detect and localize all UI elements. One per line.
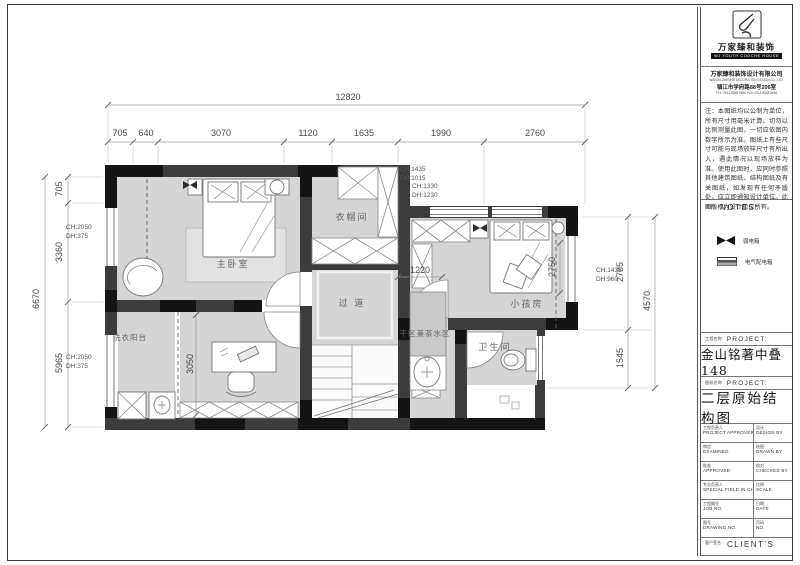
client-signature-row: 客户签名 CLIENT'S	[701, 538, 792, 556]
notes-label-zh: 说明	[705, 204, 714, 210]
notes-text: 注：本图纸均以公制为单位，所有尺寸用毫米计算。切勿以比例测量此图，一切应依图内数…	[705, 107, 788, 213]
room-label-laundry-balcony: 洗衣阳台	[102, 332, 158, 343]
company-logo: 万家臻和装饰 WJ YOUTH CODCHE HOUSE	[701, 7, 792, 67]
legend-label: 电气配电箱	[745, 258, 773, 266]
client-label-zh: 客户签名	[705, 540, 721, 545]
cell-label-en: CHECKED BY	[756, 468, 795, 474]
title-block-table: 工程负责人PROJECT APPROVER 设计DESIGN BY 审定EXAM…	[701, 424, 792, 538]
project-label-zh: 工程名称	[705, 336, 722, 342]
dim-top-seg-5: 1635	[344, 128, 384, 138]
dim-top-seg-2: 640	[128, 128, 164, 138]
floor-plan-canvas	[0, 0, 695, 565]
room-label-master-bedroom: 主卧室	[209, 257, 257, 270]
dim-top-seg-3: 3070	[201, 128, 241, 138]
company-info: 万家臻和装饰设计有限公司 WANJIA ZHENHE DECORATION DE…	[701, 67, 792, 103]
dim-top-seg-7: 2760	[515, 128, 555, 138]
cell-label-en: NO.	[756, 525, 795, 531]
notes-label-row: 说明 NOTES:	[701, 200, 792, 214]
drawing-label-zh: 图纸名称	[705, 380, 722, 386]
weak-current-box-icon	[717, 236, 735, 245]
company-address: 镇江市学府路88号206室	[701, 83, 792, 91]
dim-left-seg-2: 3360	[54, 232, 64, 272]
storage-room-marks	[500, 396, 519, 409]
project-name: 金山铭著中叠148	[701, 346, 792, 377]
title-block-panel: 万家臻和装饰 WJ YOUTH CODCHE HOUSE 万家臻和装饰设计有限公…	[700, 7, 792, 556]
staircase	[312, 345, 398, 418]
notes-label-en: NOTES:	[720, 203, 759, 212]
table-row: 工程编号JOB NO. 日期DATE	[701, 500, 792, 519]
dim-left-seg-3: 5965	[54, 343, 64, 383]
table-row: 批准APPROVED 校对CHECKED BY	[701, 462, 792, 481]
window-annotation-2: CH:2050DH:375	[66, 354, 92, 372]
window-annotation-3: CH:1435DH:1015	[400, 166, 426, 184]
drawing-sheet: 12820 705 640 3070 1120 1635 1990 2760 6…	[0, 0, 800, 565]
dim-top-seg-6: 1990	[421, 128, 461, 138]
dim-right-overall: 4570	[642, 281, 652, 321]
dry-area-counter	[410, 292, 446, 390]
cell-label-en: SPECIAL FIELD IN CHARGE	[703, 487, 751, 493]
dim-dry-width: 1220	[400, 265, 440, 275]
cell-label-en: PROJECT APPROVER	[703, 430, 751, 436]
company-logo-icon	[732, 10, 762, 40]
room-label-corridor: 过 道	[328, 296, 376, 309]
cell-label-en: JOB NO.	[703, 506, 751, 512]
dim-left-seg-1: 705	[54, 169, 64, 209]
dim-kid-depth: 2750	[547, 247, 557, 287]
cell-label-en: EXAMINED	[703, 449, 751, 455]
table-row: 图号DRAWING NO. 页码NO.	[701, 519, 792, 538]
dim-left-overall: 6670	[31, 279, 41, 319]
distribution-box-icon	[717, 257, 737, 266]
master-armchair	[123, 258, 163, 296]
notes-section: 注：本图纸均以公制为单位，所有尺寸用毫米计算。切勿以比例测量此图，一切应依图内数…	[701, 103, 792, 200]
cell-label-en: DATE	[756, 506, 795, 512]
cell-label-en: DRAWN BY	[756, 449, 795, 455]
table-row: 工程负责人PROJECT APPROVER 设计DESIGN BY	[701, 424, 792, 443]
cell-label-en: APPROVED	[703, 468, 751, 474]
drawing-label-en: PROJECT:	[727, 380, 768, 387]
room-label-dry-tea-area: 干区兼茶水区	[393, 328, 457, 339]
company-name: 万家臻和装饰设计有限公司	[701, 69, 792, 78]
company-phone: TEL: 0511-8888 6666 FAX: 0511-8888 6666	[706, 91, 788, 95]
table-row: 专业负责人SPECIAL FIELD IN CHARGE 比例SCALE	[701, 481, 792, 500]
cell-label-en: DRAWING NO.	[703, 525, 751, 531]
dim-study-depth: 3050	[185, 344, 195, 384]
drawing-name: 二层原始结构图	[701, 390, 792, 424]
room-label-kids-room: 小孩房	[503, 297, 551, 310]
room-label-bathroom: 卫生间	[471, 340, 519, 353]
room-label-cloakroom: 衣帽间	[328, 210, 376, 223]
client-label-en: CLIENT'S	[727, 540, 774, 549]
legend-label: 弱电箱	[743, 237, 760, 245]
cell-label-en: DESIGN BY	[756, 430, 795, 436]
dim-overall-width: 12820	[328, 92, 368, 102]
dim-top-seg-4: 1120	[288, 128, 328, 138]
project-label-en: PROJECT:	[727, 336, 768, 343]
legend-item-weak-current: 弱电箱	[717, 236, 792, 245]
cell-label-en: SCALE	[756, 487, 795, 493]
logo-tagline: WJ YOUTH CODCHE HOUSE	[711, 53, 782, 59]
company-name-en: WANJIA ZHENHE DECORATION DESIGN CO.,LTD.	[706, 78, 788, 82]
table-row: 审定EXAMINED 绘图DRAWN BY	[701, 443, 792, 462]
master-bed	[188, 179, 289, 257]
logo-wordmark: 万家臻和装饰	[718, 41, 775, 53]
legend-section: 弱电箱 电气配电箱	[701, 214, 792, 333]
dim-right-seg-2: 1545	[615, 338, 625, 378]
legend-item-distribution: 电气配电箱	[717, 257, 792, 266]
window-annotation-4: CH:1330DH:1230	[412, 183, 438, 201]
window-annotation-1: CH:2050DH:375	[66, 224, 92, 242]
window-annotation-5: CH:1435DH:960	[596, 267, 622, 285]
